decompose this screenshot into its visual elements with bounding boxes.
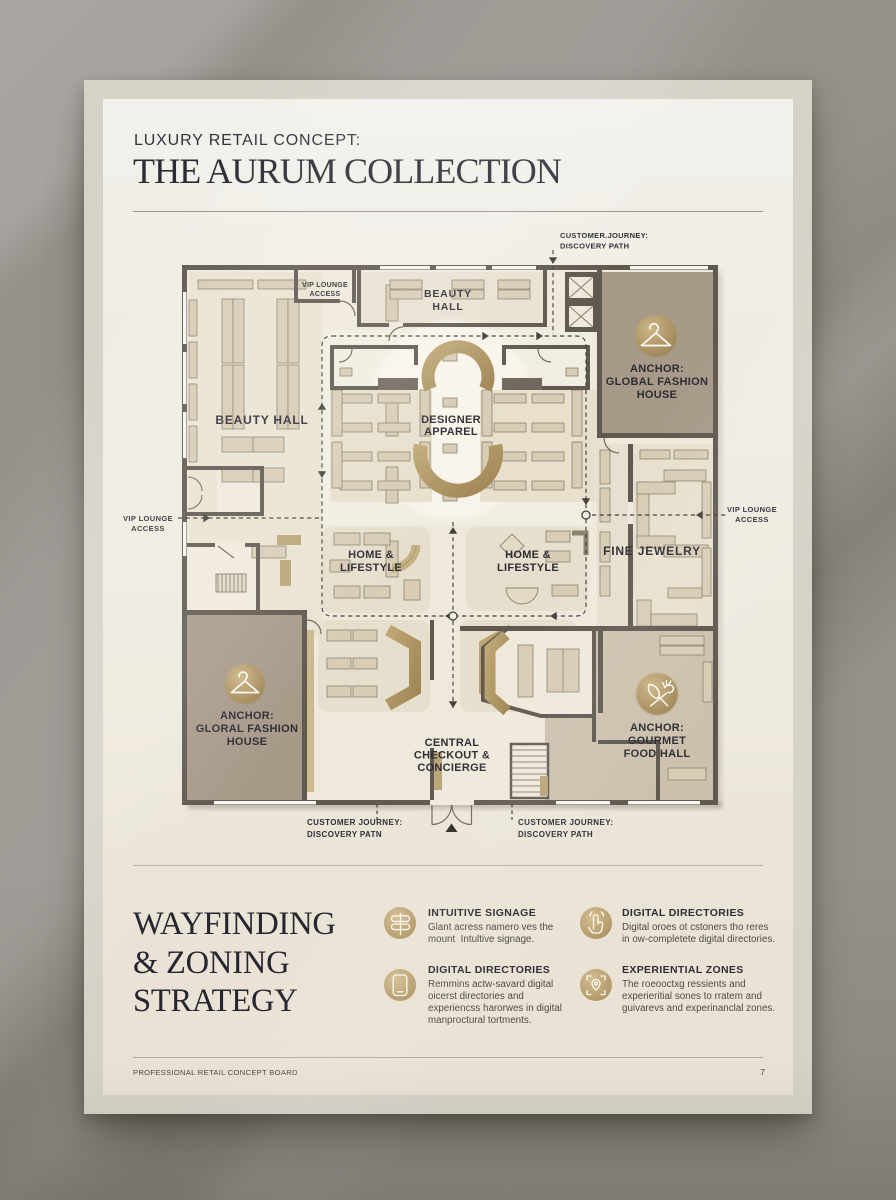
svg-text:DESIGNER: DESIGNER	[421, 414, 481, 426]
svg-text:ANCHOR:: ANCHOR:	[630, 722, 684, 734]
svg-text:GLOBAL FASHION: GLOBAL FASHION	[606, 376, 708, 388]
svg-text:VIP LOUNGE: VIP LOUNGE	[123, 514, 173, 523]
svg-text:GOURMET: GOURMET	[628, 735, 686, 747]
svg-text:CUSTOMER.JOURNEY:: CUSTOMER.JOURNEY:	[560, 231, 648, 240]
svg-text:BEAUTY: BEAUTY	[424, 288, 472, 300]
svg-text:HOME &: HOME &	[348, 549, 394, 561]
svg-text:LIFESTYLE: LIFESTYLE	[497, 562, 559, 574]
svg-text:FINE JEWELRY: FINE JEWELRY	[603, 544, 701, 558]
svg-text:CUSTOMER JOURNEY:: CUSTOMER JOURNEY:	[307, 818, 402, 827]
svg-text:HALL: HALL	[432, 301, 463, 313]
svg-text:DISCOVERY PATN: DISCOVERY PATN	[307, 830, 382, 839]
svg-text:CUSTOMER JOURNEY:: CUSTOMER JOURNEY:	[518, 818, 613, 827]
svg-text:ANCHOR:: ANCHOR:	[220, 710, 274, 722]
svg-text:ACCESS: ACCESS	[310, 291, 341, 298]
svg-text:HOME &: HOME &	[505, 549, 551, 561]
svg-text:FOOD HALL: FOOD HALL	[624, 748, 691, 760]
svg-text:VIP LOUNGE: VIP LOUNGE	[302, 282, 348, 289]
svg-text:CENTRAL: CENTRAL	[425, 737, 480, 749]
svg-text:GLORAL FASHION: GLORAL FASHION	[196, 723, 298, 735]
svg-text:ACCESS: ACCESS	[131, 524, 165, 533]
svg-text:DISCOVERY PATH: DISCOVERY PATH	[518, 830, 593, 839]
svg-text:BEAUTY HALL: BEAUTY HALL	[215, 413, 308, 427]
svg-text:APPAREL: APPAREL	[424, 426, 478, 438]
svg-text:ACCESS: ACCESS	[735, 515, 769, 524]
svg-text:DISCOVERY PATH: DISCOVERY PATH	[560, 242, 629, 251]
svg-text:HOUSE: HOUSE	[637, 389, 678, 401]
svg-text:VIP LOUNGE: VIP LOUNGE	[727, 505, 777, 514]
svg-text:CHECKOUT &: CHECKOUT &	[414, 750, 490, 762]
svg-text:HOUSE: HOUSE	[227, 736, 268, 748]
svg-text:LIFESTYLE: LIFESTYLE	[340, 562, 402, 574]
svg-text:ANCHOR:: ANCHOR:	[630, 363, 684, 375]
svg-text:CONCIERGE: CONCIERGE	[417, 762, 486, 774]
